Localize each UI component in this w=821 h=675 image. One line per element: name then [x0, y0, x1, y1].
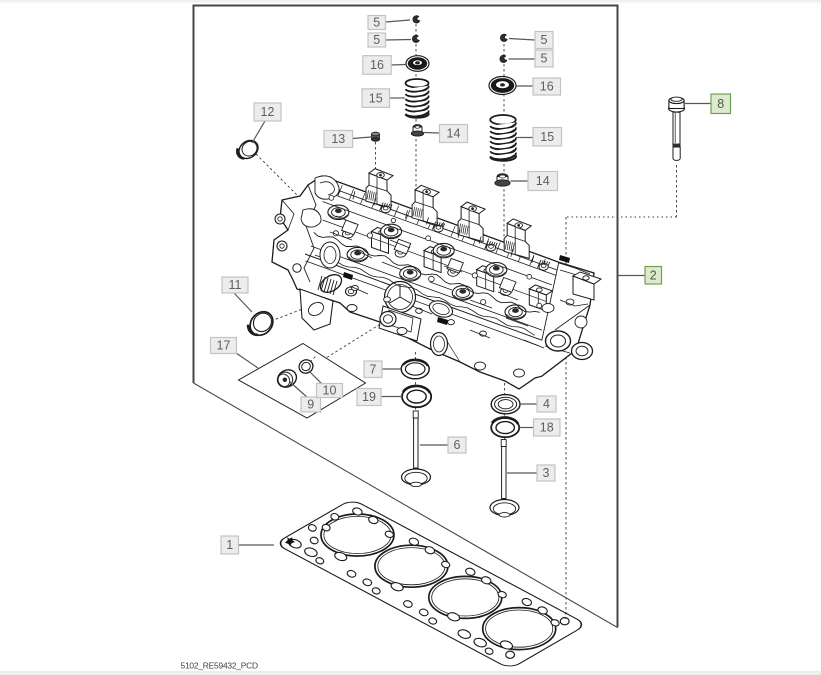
svg-text:16: 16: [540, 80, 554, 94]
svg-text:12: 12: [261, 105, 275, 119]
svg-text:15: 15: [369, 91, 383, 105]
svg-text:2: 2: [650, 268, 657, 282]
svg-text:1: 1: [226, 538, 233, 552]
svg-text:9: 9: [307, 398, 314, 412]
svg-text:14: 14: [447, 127, 461, 141]
svg-text:18: 18: [540, 421, 554, 435]
svg-text:17: 17: [217, 339, 231, 353]
svg-text:5: 5: [373, 16, 380, 30]
svg-text:6: 6: [454, 438, 461, 452]
svg-text:15: 15: [540, 130, 554, 144]
svg-text:4: 4: [543, 397, 550, 411]
svg-text:19: 19: [362, 390, 376, 404]
svg-text:14: 14: [536, 174, 550, 188]
svg-text:13: 13: [331, 132, 345, 146]
svg-text:5102_RE59432_PCD: 5102_RE59432_PCD: [181, 661, 259, 671]
svg-text:8: 8: [717, 97, 724, 111]
svg-text:7: 7: [370, 362, 377, 376]
svg-text:11: 11: [229, 278, 242, 292]
svg-text:3: 3: [543, 466, 550, 480]
svg-text:10: 10: [323, 384, 337, 398]
svg-text:5: 5: [541, 33, 548, 47]
svg-text:5: 5: [541, 52, 548, 66]
svg-text:5: 5: [373, 33, 380, 47]
svg-text:16: 16: [370, 58, 384, 72]
